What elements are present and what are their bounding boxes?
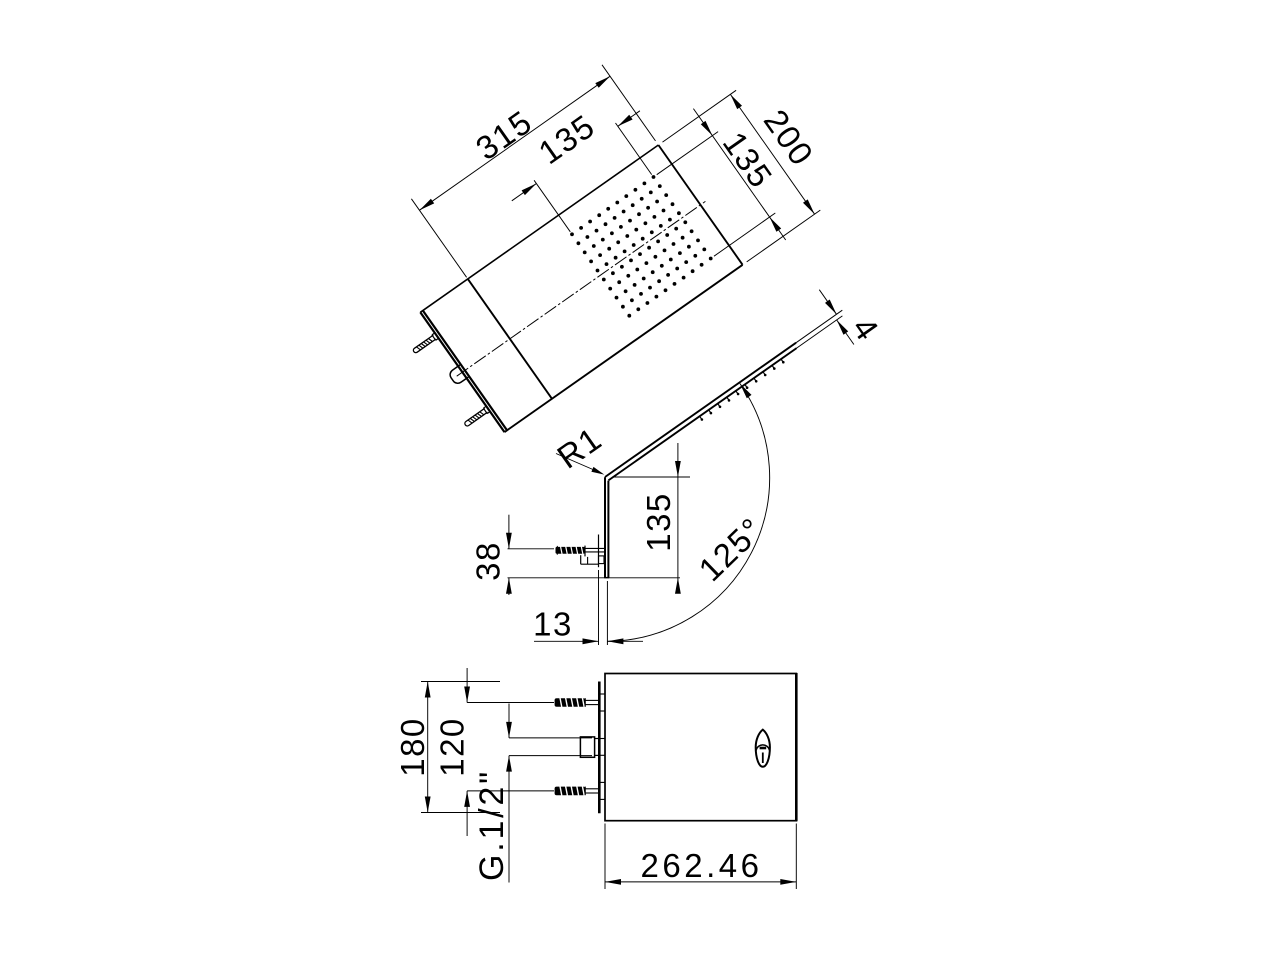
svg-text:13: 13 [533,606,573,643]
svg-text:180: 180 [394,717,431,777]
svg-text:G.1/2": G.1/2" [473,769,511,881]
svg-text:135: 135 [640,492,677,552]
svg-text:262.46: 262.46 [641,847,763,884]
svg-text:120: 120 [434,717,471,777]
svg-text:38: 38 [470,541,507,581]
